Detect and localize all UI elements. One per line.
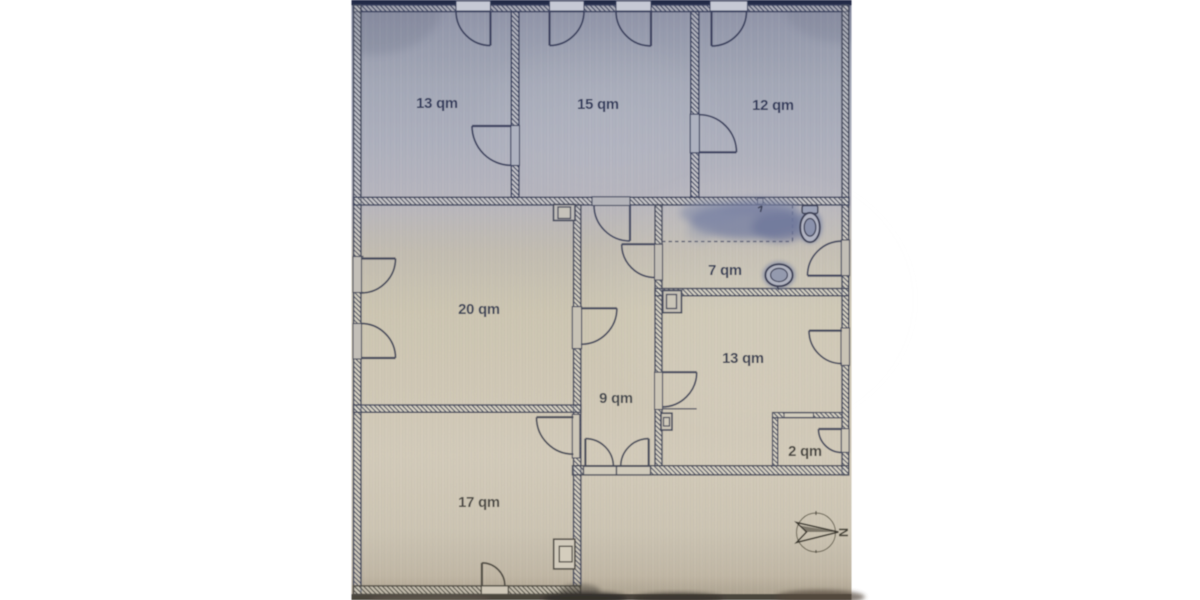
svg-text:12 qm: 12 qm bbox=[752, 98, 794, 114]
svg-text:9 qm: 9 qm bbox=[599, 391, 633, 407]
svg-text:13 qm: 13 qm bbox=[722, 351, 764, 367]
svg-text:7 qm: 7 qm bbox=[708, 263, 742, 279]
svg-text:15 qm: 15 qm bbox=[577, 97, 619, 113]
svg-text:N: N bbox=[836, 528, 851, 537]
svg-text:13 qm: 13 qm bbox=[416, 96, 458, 112]
svg-text:2 qm: 2 qm bbox=[788, 444, 822, 460]
svg-text:20 qm: 20 qm bbox=[458, 302, 500, 318]
svg-text:17 qm: 17 qm bbox=[458, 495, 500, 511]
